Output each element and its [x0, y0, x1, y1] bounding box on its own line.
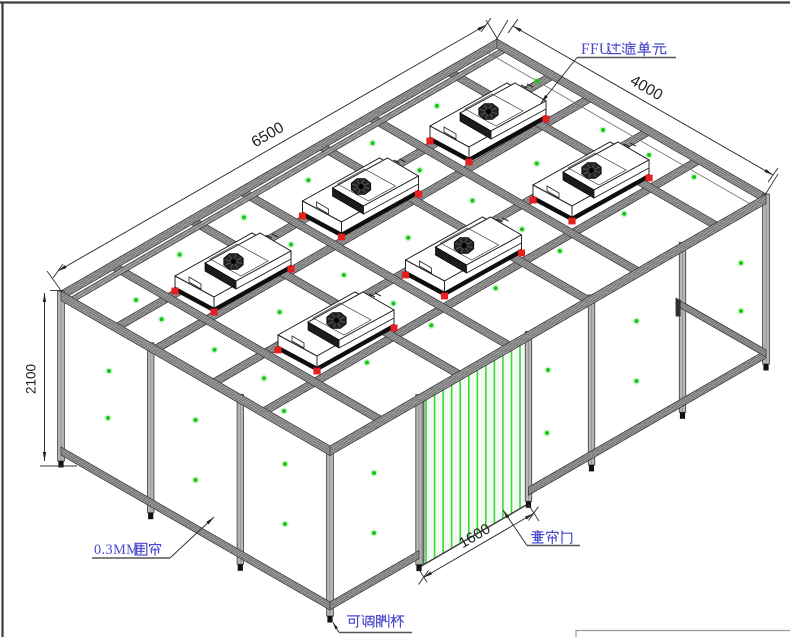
svg-text:FFU: FFU	[581, 41, 610, 58]
svg-text:0.3MM: 0.3MM	[94, 542, 139, 558]
svg-text:2100: 2100	[24, 364, 39, 394]
